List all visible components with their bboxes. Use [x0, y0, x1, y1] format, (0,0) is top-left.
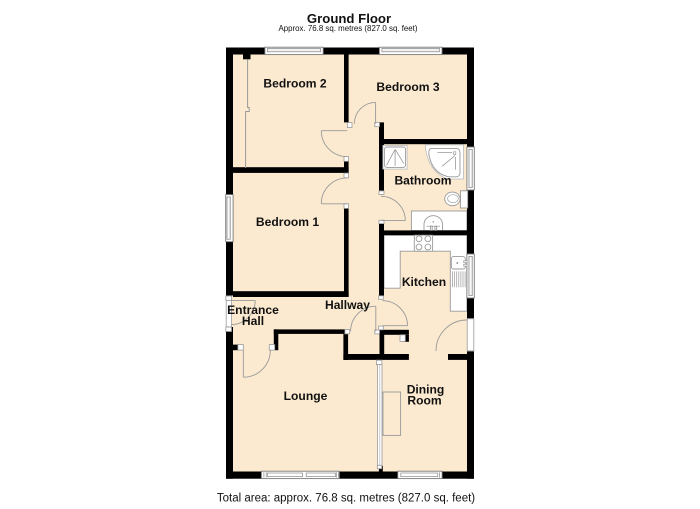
svg-text:Hallway: Hallway — [325, 298, 370, 312]
svg-text:Room: Room — [407, 394, 441, 408]
svg-text:Bedroom 2: Bedroom 2 — [263, 77, 326, 91]
svg-text:Bedroom 1: Bedroom 1 — [256, 215, 319, 229]
svg-text:Bedroom 3: Bedroom 3 — [376, 80, 439, 94]
svg-text:Hall: Hall — [242, 314, 264, 328]
svg-text:Total area: approx. 76.8 sq. m: Total area: approx. 76.8 sq. metres (827… — [217, 493, 475, 505]
svg-text:Bathroom: Bathroom — [394, 174, 451, 188]
svg-text:Kitchen: Kitchen — [402, 275, 446, 289]
svg-text:Lounge: Lounge — [284, 389, 328, 403]
svg-text:Approx. 76.8 sq. metres (827.0: Approx. 76.8 sq. metres (827.0 sq. feet) — [278, 24, 417, 33]
